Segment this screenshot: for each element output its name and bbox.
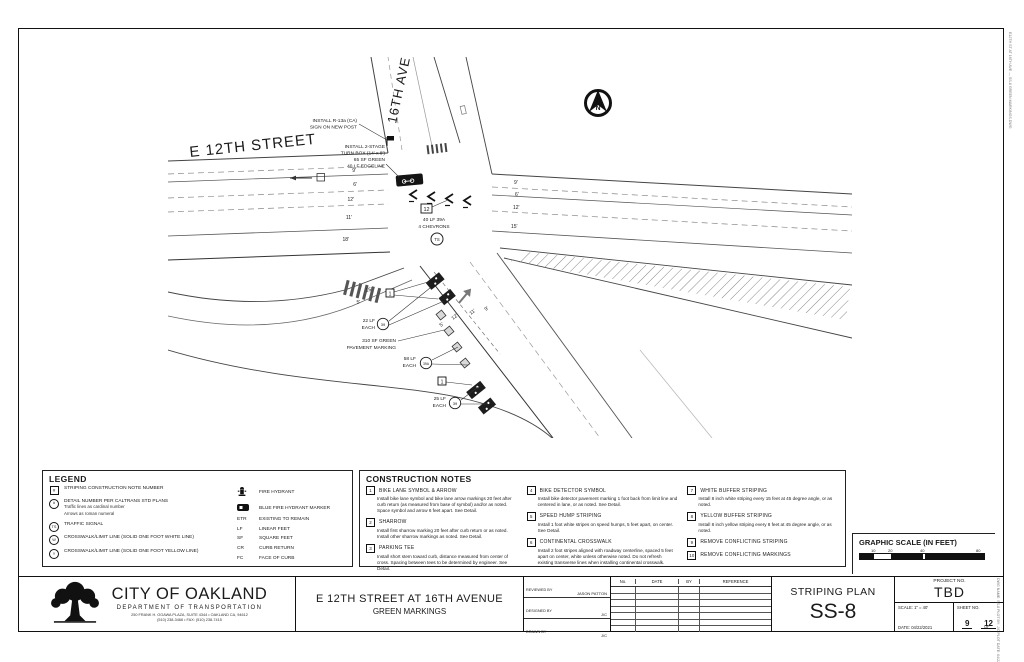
construction-note-2: 2SHARROW Install first sharrow marking 2…	[366, 518, 518, 540]
sheet-code: SS-8	[810, 600, 857, 624]
graphic-scale-title: GRAPHIC SCALE (IN FEET)	[859, 538, 989, 547]
revision-row	[611, 626, 771, 632]
svg-text:40 LF 39A: 40 LF 39A	[423, 217, 446, 223]
agency-name: CITY OF OAKLAND	[112, 585, 268, 604]
legend-item-detail-number: # DETAIL NUMBER PER CALTRANS STD PLANS T…	[49, 499, 227, 519]
project-title: E 12TH STREET AT 16TH AVENUE	[316, 593, 503, 605]
note-1b: 1	[441, 379, 444, 385]
graphic-scale-ticks: 10 20 40 80	[859, 547, 989, 553]
fire-hydrant-icon	[237, 486, 253, 499]
plot-stamp-bottom: DWG NAME: SS-8 PLOT BY: J/C PLOT DATE: 0…	[996, 578, 1000, 662]
revision-row	[611, 607, 771, 614]
signoff-reviewed: REVIEWED BY JASON PATTON	[524, 577, 610, 598]
svg-text:9': 9'	[514, 180, 518, 186]
sw-curbs	[168, 268, 552, 438]
svg-text:EACH: EACH	[433, 403, 447, 409]
plot-stamp-top: E12TH ST AT 16TH AVE — SS-8 GREEN MARKIN…	[1008, 32, 1012, 129]
legend-item-crosswalk-white: W CROSSWALK/LIMIT LINE (SOLID ONE FOOT W…	[49, 535, 227, 545]
svg-text:6': 6'	[353, 182, 357, 188]
svg-text:22 LF: 22 LF	[363, 318, 375, 324]
construction-note-9: 9REMOVE CONFLICTING STRIPING	[687, 538, 839, 547]
svg-text:TURN BOX (14' x 8'): TURN BOX (14' x 8')	[341, 151, 386, 157]
svg-text:SIGN ON NEW POST: SIGN ON NEW POST	[310, 125, 357, 131]
svg-text:58 LF: 58 LF	[404, 356, 416, 362]
crosswalk-yellow-icon: Y	[49, 549, 59, 559]
svg-text:11': 11'	[469, 308, 478, 317]
svg-text:9': 9'	[484, 306, 491, 313]
blue-marker-icon	[237, 504, 253, 513]
chevron-markings	[409, 190, 471, 208]
construction-note-1: 1BIKE LANE SYMBOL & ARROW Install bike l…	[366, 486, 518, 514]
construction-notes-panel: CONSTRUCTION NOTES 1BIKE LANE SYMBOL & A…	[359, 470, 846, 567]
note-1a: 1	[389, 291, 392, 297]
detail-39-a: 39	[381, 322, 386, 327]
graphic-scale-bar	[859, 553, 985, 560]
revision-row	[611, 620, 771, 627]
plan-type-block: STRIPING PLAN SS-8	[772, 577, 895, 632]
svg-text:INSTALL 2-STAGE: INSTALL 2-STAGE	[345, 144, 385, 150]
revision-row	[611, 600, 771, 607]
construction-notes-title: CONSTRUCTION NOTES	[366, 474, 839, 484]
svg-text:EACH: EACH	[362, 325, 376, 331]
detail-39-b: 39	[453, 401, 458, 406]
revision-table-header: No. DATE BY REFERENCE	[611, 577, 771, 587]
legend-item-blue-marker: BLUE FIRE HYDRANT MARKER	[237, 504, 346, 513]
svg-text:15': 15'	[511, 224, 518, 230]
svg-text:25 LF: 25 LF	[434, 396, 446, 402]
svg-text:5': 5'	[439, 322, 446, 329]
project-subtitle: GREEN MARKINGS	[373, 607, 446, 616]
svg-text:11': 11'	[346, 215, 352, 221]
sheet-number: 9	[962, 619, 972, 629]
revision-row	[611, 613, 771, 620]
svg-text:PAVEMENT MARKING: PAVEMENT MARKING	[347, 345, 397, 351]
project-no-cell: PROJECT NO. TBD	[895, 577, 1004, 603]
svg-text:12': 12'	[347, 197, 354, 203]
plan-type: STRIPING PLAN	[790, 586, 875, 598]
hatched-median	[510, 252, 850, 320]
construction-note-8: 8YELLOW BUFFER STRIPING Install 8 inch y…	[687, 512, 839, 534]
revision-row	[611, 594, 771, 601]
note-number-box-icon: #	[50, 486, 59, 495]
crosswalk-white-icon: W	[49, 535, 59, 545]
signoff-block: REVIEWED BY JASON PATTON DESIGNED BY J/C…	[524, 577, 611, 632]
construction-note-6: 6CONTINENTAL CROSSWALK Install 2 foot st…	[527, 538, 679, 566]
legend-panel: LEGEND # STRIPING CONSTRUCTION NOTE NUMB…	[42, 470, 353, 567]
legend-item-crosswalk-yellow: Y CROSSWALK/LIMIT LINE (SOLID ONE FOOT Y…	[49, 549, 227, 559]
legend-item-traffic-signal: TS TRAFFIC SIGNAL	[49, 522, 227, 532]
project-no-value: TBD	[895, 584, 1004, 600]
legend-item-note-number: # STRIPING CONSTRUCTION NOTE NUMBER	[49, 486, 227, 495]
dimension-labels: 9' 6' 12' 11' 18' 9' 6' 12' 15' 15' 5' 1…	[342, 168, 519, 329]
sheet-total: 12	[981, 619, 996, 629]
two-stage-turn-box	[396, 173, 424, 186]
date-value: 04/22/2021	[911, 625, 932, 630]
oakland-tree-logo-icon	[46, 579, 104, 630]
traffic-signal-symbol: TS	[434, 237, 440, 242]
plan-sheet: 12 TS 1 1 39 39A 39 INSTALL R-13a (CA) S…	[0, 0, 1024, 662]
construction-note-7: 7WHITE BUFFER STRIPING Install 8 inch wh…	[687, 486, 839, 508]
detail-39A: 39A	[423, 362, 430, 366]
svg-text:EACH: EACH	[403, 363, 417, 369]
project-no-block: PROJECT NO. TBD SCALE: 1" = 40' DATE: 04…	[895, 577, 1004, 632]
svg-text:12': 12'	[513, 205, 520, 211]
agency-dept: DEPARTMENT OF TRANSPORTATION	[112, 605, 268, 611]
svg-text:65 SF GREEN: 65 SF GREEN	[354, 157, 386, 163]
note-12: 12	[423, 207, 429, 213]
svg-text:N: N	[595, 105, 600, 112]
turn-arrow-marking	[455, 286, 474, 306]
detail-number-circle-icon: #	[49, 499, 59, 509]
project-title-block: E 12TH STREET AT 16TH AVENUE GREEN MARKI…	[296, 577, 524, 632]
agency-block: CITY OF OAKLAND DEPARTMENT OF TRANSPORTA…	[18, 577, 296, 632]
scale-value: 1" = 40'	[914, 605, 928, 610]
signoff-designed: DESIGNED BY J/C	[524, 598, 610, 619]
north-arrow-icon: N	[586, 90, 611, 116]
title-block: CITY OF OAKLAND DEPARTMENT OF TRANSPORTA…	[18, 576, 1004, 632]
north-crosswalk	[426, 143, 447, 154]
svg-text:310 SF GREEN: 310 SF GREEN	[362, 338, 396, 344]
note-symbols: 12 TS 1 1 39 39A 39	[377, 204, 460, 409]
svg-text:INSTALL R-13a (CA): INSTALL R-13a (CA)	[312, 118, 357, 124]
svg-text:12': 12'	[451, 313, 460, 322]
construction-note-4: 4BIKE DETECTOR SYMBOL Install bike detec…	[527, 486, 679, 508]
legend-item-etr: ETR EXISTING TO REMAIN	[237, 517, 346, 522]
agency-address: 250 FRANK H. OGAWA PLAZA, SUITE 4344 • O…	[112, 613, 268, 624]
svg-text:4 CHEVRONS: 4 CHEVRONS	[418, 224, 449, 230]
svg-text:9': 9'	[352, 168, 356, 174]
traffic-signal-icon: TS	[49, 522, 59, 532]
16th-ave-label: 16TH AVE	[384, 55, 413, 124]
revision-table: No. DATE BY REFERENCE	[611, 577, 772, 632]
signoff-drawn: DRAWN BY J/C	[524, 619, 610, 639]
construction-note-5: 5SPEED HUMP STRIPING Install 1 foot whit…	[527, 512, 679, 534]
construction-note-10: 10REMOVE CONFLICTING MARKINGS	[687, 551, 839, 560]
legend-item-sf: SF SQUARE FEET	[237, 536, 346, 541]
svg-text:18': 18'	[342, 237, 349, 243]
scale-date-cell: SCALE: 1" = 40' DATE: 04/22/2021	[895, 603, 954, 632]
svg-text:5': 5'	[356, 299, 361, 306]
legend-item-lf: LF LINEAR FEET	[237, 527, 346, 532]
r13a-sign-symbol	[387, 136, 394, 146]
legend-item-fc: FC FACE OF CURB	[237, 556, 346, 561]
svg-text:6': 6'	[515, 192, 519, 198]
legend-item-cr: CR CURB RETURN	[237, 546, 346, 551]
legend-item-fire-hydrant: FIRE HYDRANT	[237, 486, 346, 499]
construction-note-3: 3PARKING TEE Install short stem toward c…	[366, 544, 518, 572]
legend-title: LEGEND	[49, 474, 346, 484]
revision-row	[611, 587, 771, 594]
graphic-scale-panel: GRAPHIC SCALE (IN FEET) 10 20 40 80	[852, 533, 995, 574]
